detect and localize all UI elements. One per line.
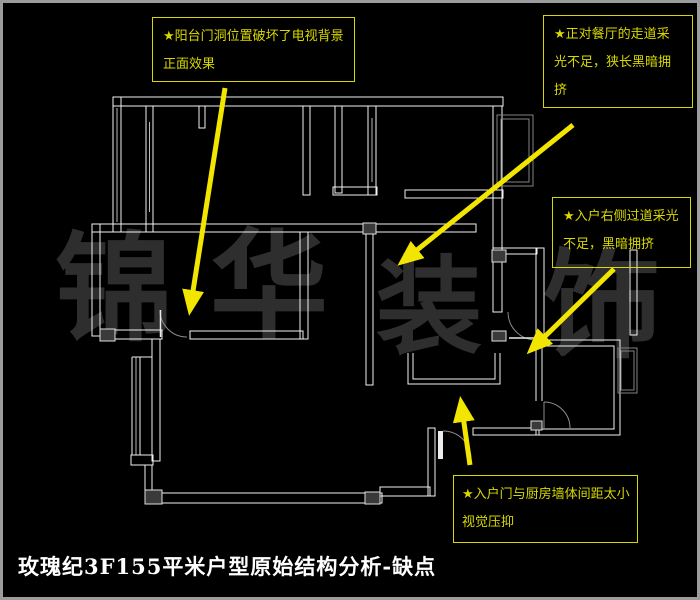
annotation-text: ★入户门与厨房墙体间距太小 bbox=[462, 481, 629, 509]
floorplan-screenshot: 锦 华 装 饰 bbox=[0, 0, 700, 600]
entry-door-leaf bbox=[438, 431, 443, 459]
arrow-dining-corridor bbox=[402, 125, 573, 262]
doors-group bbox=[160, 310, 570, 459]
annotation-text: 正面效果 bbox=[163, 51, 344, 79]
arrow-balcony-door bbox=[190, 88, 225, 310]
door-arc bbox=[544, 402, 570, 428]
door-arc bbox=[160, 310, 187, 337]
annotation-balcony-door: ★阳台门洞位置破坏了电视背景 正面效果 bbox=[152, 17, 355, 82]
annotation-text: ★正对餐厅的走道采 bbox=[554, 21, 682, 49]
door-arc bbox=[508, 312, 536, 340]
arrows-group bbox=[190, 88, 614, 465]
annotation-entry-right-corridor: ★入户右侧过道采光 不足，黑暗拥挤 bbox=[552, 197, 691, 268]
annotation-text: ★入户右侧过道采光 bbox=[563, 203, 680, 231]
page-title: 玫瑰纪3F155平米户型原始结构分析-缺点 bbox=[18, 551, 436, 581]
arrow-entry-kitchen-gap bbox=[461, 402, 470, 465]
arrow-entry-right-corridor bbox=[531, 269, 614, 350]
annotation-text: 光不足，狭长黑暗拥 bbox=[554, 49, 682, 77]
annotation-entry-kitchen-gap: ★入户门与厨房墙体间距太小 视觉压抑 bbox=[453, 475, 638, 543]
walls-group bbox=[92, 97, 637, 503]
annotation-text: 挤 bbox=[554, 77, 682, 105]
windows-group bbox=[117, 108, 372, 455]
annotation-text: ★阳台门洞位置破坏了电视背景 bbox=[163, 23, 344, 51]
annotation-text: 视觉压抑 bbox=[462, 509, 629, 537]
annotation-dining-corridor: ★正对餐厅的走道采 光不足，狭长黑暗拥 挤 bbox=[543, 15, 693, 108]
columns-group bbox=[100, 223, 542, 504]
annotation-text: 不足，黑暗拥挤 bbox=[563, 231, 680, 259]
